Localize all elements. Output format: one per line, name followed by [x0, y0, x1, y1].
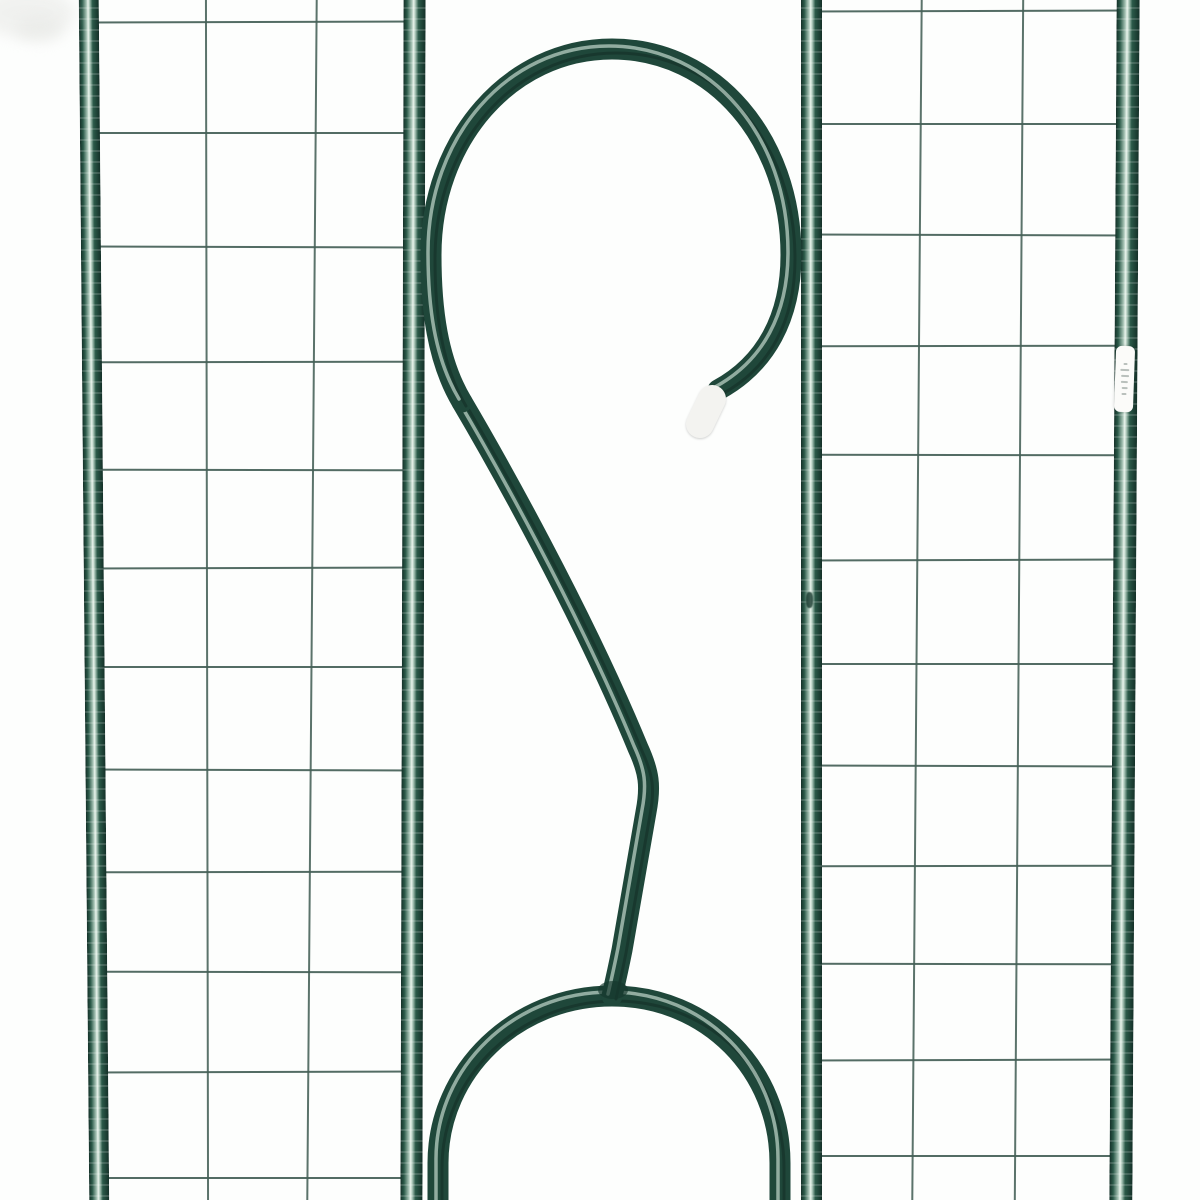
photo-smudge: [0, 0, 75, 38]
right-mesh-wire-horizontal: [806, 558, 1132, 561]
hook-loop: [428, 46, 795, 406]
bottom-arch-highlight: [436, 992, 778, 1200]
bottom-arch-shade: [442, 1001, 784, 1200]
right-mesh-wire-horizontal: [806, 963, 1132, 966]
right-mesh-wire-horizontal: [806, 865, 1132, 868]
right-mesh-wire-horizontal: [806, 454, 1132, 457]
left-mesh-wire-horizontal: [90, 132, 422, 134]
right-mesh-wire-horizontal: [806, 1058, 1132, 1061]
hook-loop-tube: [431, 49, 791, 402]
right-mesh-wire-vertical: [911, 0, 923, 1200]
left-mesh-wire-horizontal: [90, 1177, 422, 1179]
right-outer-post: [1109, 0, 1139, 1200]
bottom-arch-tube: [438, 996, 780, 1200]
white-end-cap: [700, 399, 712, 424]
right-mesh-wire-horizontal: [806, 764, 1132, 767]
hang-tag: [1114, 346, 1135, 413]
tag-text-mark: [1121, 387, 1127, 389]
left-mesh-wire-horizontal: [90, 20, 422, 23]
right-mesh-wire-horizontal: [806, 233, 1132, 236]
left-mesh-wire-horizontal: [90, 768, 422, 771]
bottom-arch: [436, 992, 784, 1200]
hook-loop-highlight: [428, 46, 788, 399]
left-inner-post: [400, 0, 425, 1200]
left-mesh-wire-horizontal: [90, 971, 422, 974]
weld-joint: [598, 981, 628, 999]
left-outer-post: [79, 0, 110, 1200]
left-mesh-wire-horizontal: [90, 1070, 422, 1073]
tag-text-mark: [1121, 381, 1128, 383]
tag-text-mark: [1121, 393, 1126, 395]
hook-loop-shade: [435, 53, 795, 406]
right-mesh-wire-horizontal: [806, 663, 1132, 665]
photo-smudge: [16, 16, 64, 42]
right-mesh-wire-horizontal: [806, 345, 1132, 348]
right-mesh-wire-horizontal: [806, 9, 1132, 12]
hook-stem-shade: [466, 405, 653, 999]
tag-text-mark: [1120, 369, 1129, 371]
left-mesh-wire-vertical: [205, 0, 209, 1200]
hook-stem-highlight: [458, 400, 645, 994]
hook-stem: [458, 400, 653, 999]
hook-stem-tube: [462, 402, 649, 996]
left-mesh-wire-horizontal: [90, 666, 422, 668]
left-mesh-wire-horizontal: [90, 361, 422, 364]
right-mesh-wire-vertical: [1014, 0, 1024, 1200]
trellis-product-photo: [0, 0, 1200, 1200]
tag-text-mark: [1123, 363, 1127, 365]
right-mesh-wire-horizontal: [806, 1155, 1132, 1157]
left-mesh-wire-horizontal: [90, 566, 422, 569]
paint-chip: [806, 592, 813, 608]
left-mesh-wire-horizontal: [90, 245, 422, 248]
left-mesh-wire-horizontal: [90, 871, 422, 874]
right-mesh-wire-horizontal: [806, 123, 1132, 125]
tag-text-mark: [1121, 375, 1129, 377]
left-mesh-wire-vertical: [306, 0, 318, 1200]
left-mesh-wire-horizontal: [90, 469, 422, 472]
